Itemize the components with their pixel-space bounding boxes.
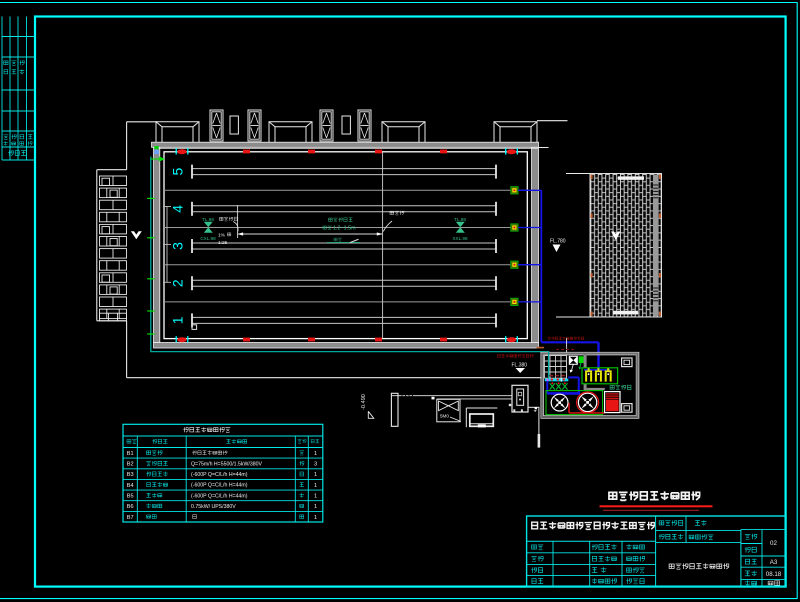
svg-text:1: 1 (314, 472, 317, 478)
svg-text:1:25: 1:25 (218, 240, 228, 246)
svg-text:3: 3 (314, 462, 317, 468)
svg-text:(-600P Q=C/L/h H=44m): (-600P Q=C/L/h H=44m) (191, 483, 248, 489)
svg-text:FL.380: FL.380 (512, 363, 528, 369)
svg-text:B7: B7 (127, 515, 134, 521)
svg-text:CXL.98: CXL.98 (200, 236, 216, 241)
svg-text:(-600P Q=C/L/h H=44m): (-600P Q=C/L/h H=44m) (191, 493, 248, 499)
svg-text:TL.98: TL.98 (202, 217, 214, 222)
svg-text:08.18: 08.18 (766, 571, 782, 578)
svg-text:B6: B6 (127, 504, 134, 510)
svg-text:Q=75m/h H=5500/1.5kW/380V: Q=75m/h H=5500/1.5kW/380V (191, 461, 262, 467)
svg-text:B2: B2 (127, 462, 134, 468)
svg-text:B4: B4 (127, 483, 134, 489)
svg-text:B5: B5 (127, 494, 134, 500)
svg-text:1: 1 (314, 515, 317, 521)
svg-text:B1: B1 (127, 451, 134, 457)
svg-text:5M0: 5M0 (440, 414, 449, 419)
svg-text:1: 1 (314, 504, 317, 510)
svg-text:1: 1 (314, 494, 317, 500)
svg-text:5: 5 (170, 167, 186, 175)
svg-text:2: 2 (170, 279, 186, 287)
svg-text:1.2~1.5m: 1.2~1.5m (333, 226, 356, 232)
svg-text:A3: A3 (770, 559, 778, 566)
svg-text:XXL.98: XXL.98 (452, 236, 468, 241)
svg-text:1: 1 (314, 483, 317, 489)
svg-text:TL.98: TL.98 (454, 217, 466, 222)
svg-text:3: 3 (170, 242, 186, 250)
svg-text:1: 1 (170, 316, 186, 324)
svg-text:1%: 1% (218, 232, 226, 238)
svg-text:(-600P Q=C/L/h H=44m): (-600P Q=C/L/h H=44m) (191, 472, 248, 478)
svg-text:B3: B3 (127, 472, 134, 478)
svg-text:FL.780: FL.780 (550, 239, 566, 245)
svg-text:4: 4 (170, 205, 186, 213)
svg-text:-0.490: -0.490 (361, 394, 367, 410)
svg-text:0.75kW/ UPS/380V: 0.75kW/ UPS/380V (191, 504, 236, 510)
svg-text:02: 02 (770, 540, 777, 547)
svg-text:1: 1 (314, 451, 317, 457)
